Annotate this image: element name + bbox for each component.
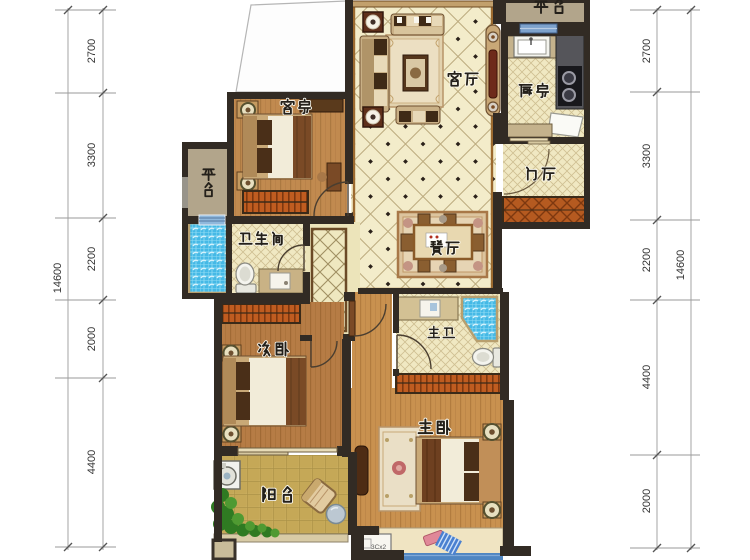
svg-text:3300: 3300 [641,144,653,168]
svg-text:2200: 2200 [86,247,98,271]
svg-text:2700: 2700 [86,39,98,63]
svg-text:2700: 2700 [641,39,653,63]
svg-text:3Cx2: 3Cx2 [371,544,387,551]
svg-text:14600: 14600 [52,263,64,294]
svg-text:4400: 4400 [641,365,653,389]
svg-text:14600: 14600 [675,250,687,281]
svg-text:2000: 2000 [86,327,98,351]
svg-text:2200: 2200 [641,248,653,272]
svg-text:2000: 2000 [641,489,653,513]
svg-text:3300: 3300 [86,143,98,167]
svg-text:4400: 4400 [86,450,98,474]
